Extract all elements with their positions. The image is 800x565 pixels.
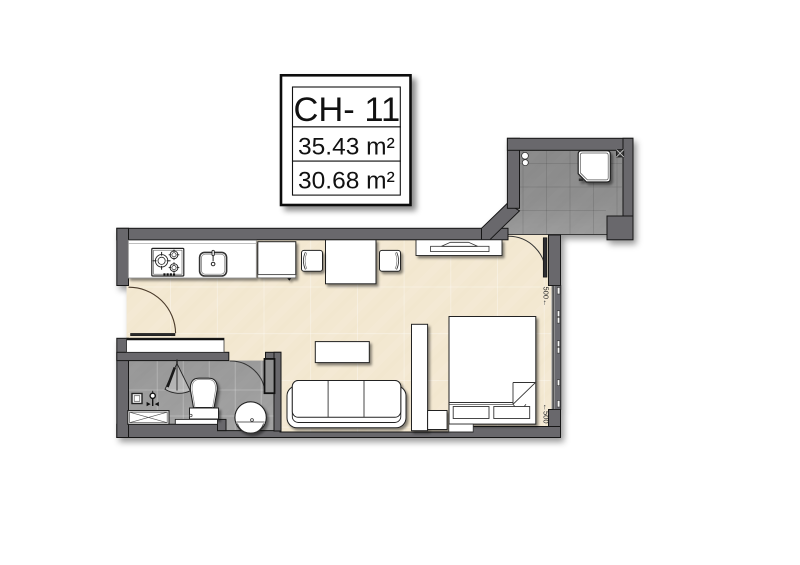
svg-text:35.43 m²: 35.43 m²	[298, 134, 395, 161]
svg-text:CH- 11: CH- 11	[293, 91, 400, 129]
svg-text:500←: 500←	[542, 287, 551, 307]
svg-text:←500: ←500	[542, 404, 551, 424]
svg-text:30.68 m²: 30.68 m²	[298, 167, 395, 194]
